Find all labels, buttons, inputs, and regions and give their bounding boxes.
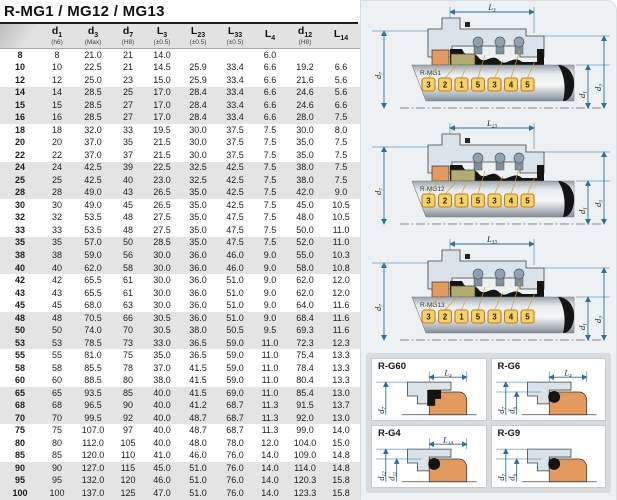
table-cell: 18 — [0, 126, 40, 135]
table-cell: 70 — [40, 414, 74, 423]
table-row: 707099.59240.048.768.711.392.013.0 — [0, 412, 360, 425]
table-cell: 50 — [0, 326, 40, 335]
table-row: 8585120.011041.046.076.014.0109.014.8 — [0, 450, 360, 463]
table-cell: 65 — [40, 389, 74, 398]
table-cell: 53 — [40, 339, 74, 348]
table-cell: 65.5 — [74, 276, 112, 285]
table-cell: 14.0 — [254, 451, 286, 460]
table-cell: 99.5 — [74, 414, 112, 423]
table-cell: 51.0 — [216, 314, 254, 323]
table-cell: 15 — [0, 101, 40, 110]
spring — [514, 269, 524, 279]
table-cell: 99.0 — [286, 426, 324, 435]
table-cell: 32.5 — [180, 163, 216, 172]
table-cell: 59.0 — [216, 351, 254, 360]
d7-dimension-label: d7 — [373, 72, 385, 79]
table-cell: 68 — [0, 401, 40, 410]
table-cell: 47.0 — [144, 489, 180, 498]
table-cell: 12 — [40, 76, 74, 85]
table-cell: 15.0 — [144, 76, 180, 85]
table-header-corner — [0, 24, 40, 48]
seat-elastomer — [432, 282, 449, 297]
table-cell: 59.0 — [216, 339, 254, 348]
table-row: 535378.57333.036.559.011.072.312.3 — [0, 337, 360, 350]
table-cell: 22 — [40, 151, 74, 160]
table-cell: 61 — [112, 289, 144, 298]
table-cell: 33.4 — [216, 88, 254, 97]
table-cell: 27 — [112, 101, 144, 110]
table-cell: 7.5 — [324, 113, 358, 122]
table-cell: 15 — [40, 101, 74, 110]
table-cell: 14.0 — [254, 489, 286, 498]
table-cell: 41.5 — [180, 376, 216, 385]
table-row: 484870.56630.536.051.09.068.411.6 — [0, 312, 360, 325]
table-cell: 30.0 — [144, 251, 180, 260]
table-cell: 28.5 — [74, 101, 112, 110]
seal-diagram-r-mg1: L3 R-MG1 3215345 — [364, 3, 614, 117]
left-dimension-label: d7 — [377, 407, 388, 414]
table-cell: 7.5 — [254, 238, 286, 247]
callout-number: 4 — [508, 197, 513, 206]
table-cell: 112.0 — [74, 439, 112, 448]
callout-number: 3 — [492, 313, 497, 322]
table-cell: 58 — [0, 364, 40, 373]
table-cell: 45 — [0, 301, 40, 310]
callout-box: 3 — [488, 194, 501, 207]
table-cell: 9.5 — [254, 326, 286, 335]
table-cell: 12.3 — [324, 339, 358, 348]
table-cell: 17.0 — [144, 88, 180, 97]
table-cell: 46.0 — [144, 476, 180, 485]
table-cell: 30.0 — [180, 151, 216, 160]
table-cell: 28.0 — [286, 113, 324, 122]
table-cell: 41.5 — [180, 389, 216, 398]
table-cell: 72.3 — [286, 339, 324, 348]
table-cell: 10.8 — [324, 264, 358, 273]
table-cell: 11.3 — [254, 426, 286, 435]
table-cell: 38.0 — [286, 176, 324, 185]
table-cell: 21.5 — [144, 138, 180, 147]
table-cell: 90 — [40, 464, 74, 473]
dimension-table-section: R-MG1 / MG12 / MG13 d1(h6)d3(Max)d7(H8)L… — [0, 0, 360, 500]
table-cell: 40.0 — [144, 439, 180, 448]
table-cell: 95 — [0, 476, 40, 485]
table-cell: 36.0 — [180, 264, 216, 273]
column-header: L14 — [324, 29, 358, 42]
seat-ring — [451, 170, 475, 181]
table-cell: 68.0 — [74, 301, 112, 310]
callout-number: 2 — [442, 81, 447, 90]
d1-dimension-label: d1 — [577, 323, 589, 330]
table-cell: 14.8 — [324, 464, 358, 473]
table-cell: 14.0 — [144, 51, 180, 60]
table-cell: 92 — [112, 414, 144, 423]
table-cell: 115 — [112, 464, 144, 473]
table-cell: 30.0 — [286, 126, 324, 135]
table-cell: 42.5 — [216, 176, 254, 185]
table-cell: 40.0 — [144, 389, 180, 398]
column-header: L23(±0.5) — [180, 26, 216, 47]
table-row: 686896.59040.041.268.711.391.513.7 — [0, 399, 360, 412]
variant-card-r-g6: R-G6 L4 d7 d6 — [491, 358, 607, 421]
callout-number: 4 — [508, 313, 513, 322]
table-cell: 25 — [112, 88, 144, 97]
table-cell: 100 — [0, 489, 40, 498]
table-cell: 7.5 — [254, 213, 286, 222]
callout-number: 4 — [508, 81, 513, 90]
table-cell: 123.3 — [286, 489, 324, 498]
table-cell: 24.6 — [286, 88, 324, 97]
table-cell: 33.0 — [144, 339, 180, 348]
table-cell: 13.3 — [324, 376, 358, 385]
column-header: L4 — [254, 29, 286, 42]
d3-dimension-label: d3 — [593, 84, 605, 91]
table-cell: 28.5 — [144, 238, 180, 247]
callout-number: 5 — [475, 313, 480, 322]
table-row: 8080112.010540.048.078.012.0104.015.0 — [0, 437, 360, 450]
table-cell: 38.0 — [144, 376, 180, 385]
table-cell: 30.0 — [144, 264, 180, 273]
table-cell: 97 — [112, 426, 144, 435]
table-cell: 7.5 — [254, 163, 286, 172]
table-row: 141428.52517.028.433.46.624.65.6 — [0, 87, 360, 100]
callout-number: 3 — [492, 197, 497, 206]
table-cell: 30.0 — [180, 138, 216, 147]
table-cell: 33.4 — [216, 76, 254, 85]
callout-box: 5 — [521, 194, 534, 207]
table-cell: 7.5 — [254, 126, 286, 135]
callout-box: 2 — [438, 310, 451, 323]
table-cell: 120.0 — [74, 451, 112, 460]
table-cell: 28 — [0, 188, 40, 197]
table-row: 7575107.09740.048.768.711.399.014.0 — [0, 424, 360, 437]
table-cell: 85.4 — [286, 389, 324, 398]
table-cell: 49.0 — [74, 201, 112, 210]
callout-number: 3 — [492, 81, 497, 90]
dimension-table: 8821.02114.06.0101022.52114.525.933.46.6… — [0, 49, 360, 500]
table-cell: 25 — [40, 176, 74, 185]
callout-number: 5 — [525, 81, 530, 90]
table-cell: 6.6 — [324, 63, 358, 72]
table-cell: 85 — [112, 389, 144, 398]
table-cell: 7.5 — [254, 188, 286, 197]
left-dimension-label: d7 — [496, 407, 507, 414]
callout-box: 5 — [521, 78, 534, 91]
page-title: R-MG1 / MG12 / MG13 — [0, 0, 358, 24]
table-cell: 110 — [112, 451, 144, 460]
column-header: L3(±0.5) — [144, 26, 180, 47]
callout-box: 1 — [455, 78, 468, 91]
table-cell: 36.0 — [180, 314, 216, 323]
table-row: 9595132.012046.051.076.014.0120.315.8 — [0, 475, 360, 488]
table-cell: 85.5 — [74, 364, 112, 373]
left-dimension-label: d11 — [388, 471, 399, 480]
spring — [495, 153, 505, 163]
variant-cross-section: L4 d7 d6 — [492, 369, 606, 419]
table-cell: 22.5 — [144, 163, 180, 172]
table-cell: 28 — [40, 188, 74, 197]
table-cell: 43 — [0, 289, 40, 298]
table-cell: 33 — [112, 126, 144, 135]
table-cell: 51.0 — [180, 464, 216, 473]
table-cell: 36.5 — [180, 339, 216, 348]
table-cell: 12.0 — [254, 439, 286, 448]
table-cell: 26.5 — [144, 188, 180, 197]
table-cell: 35.0 — [180, 188, 216, 197]
table-cell: 43 — [40, 289, 74, 298]
table-cell: 30.0 — [144, 301, 180, 310]
table-cell: 62.0 — [74, 264, 112, 273]
table-cell: 7.5 — [324, 151, 358, 160]
table-cell: 36.0 — [180, 301, 216, 310]
table-cell: 32.0 — [74, 126, 112, 135]
table-cell: 60 — [0, 376, 40, 385]
callout-box: 3 — [422, 194, 435, 207]
table-cell: 48 — [112, 226, 144, 235]
spring — [473, 269, 483, 279]
table-cell: 58 — [40, 364, 74, 373]
table-cell: 30 — [0, 201, 40, 210]
table-cell: 45.0 — [286, 201, 324, 210]
table-cell: 76.0 — [216, 464, 254, 473]
table-cell: 78.5 — [74, 339, 112, 348]
table-cell: 68.7 — [216, 401, 254, 410]
table-cell: 14.0 — [324, 426, 358, 435]
top-dimension-label: L4 — [563, 369, 572, 379]
table-cell: 127.0 — [74, 464, 112, 473]
table-cell: 35.0 — [286, 151, 324, 160]
table-row: 9090127.011545.051.076.014.0114.014.8 — [0, 462, 360, 475]
table-cell: 47.5 — [216, 213, 254, 222]
table-cell: 62.0 — [286, 276, 324, 285]
table-header-row: d1(h6)d3(Max)d7(H8)L3(±0.5)L23(±0.5)L33(… — [0, 24, 360, 49]
table-cell: 114.0 — [286, 464, 324, 473]
table-cell: 38.0 — [286, 163, 324, 172]
table-cell: 37.5 — [216, 138, 254, 147]
callout-row: 3215345 — [422, 194, 534, 207]
table-cell: 78.0 — [216, 439, 254, 448]
table-cell: 30.5 — [144, 326, 180, 335]
table-cell: 5.6 — [324, 76, 358, 85]
table-cell: 10 — [40, 63, 74, 72]
top-dimension: L4 — [549, 369, 587, 382]
callout-number: 5 — [475, 81, 480, 90]
table-cell: 38 — [40, 251, 74, 260]
table-cell: 55.0 — [286, 251, 324, 260]
table-cell: 53.5 — [74, 213, 112, 222]
table-cell: 28.5 — [74, 88, 112, 97]
table-cell: 28.4 — [180, 113, 216, 122]
table-cell: 35 — [112, 138, 144, 147]
table-cell: 60 — [40, 376, 74, 385]
table-cell: 30.0 — [144, 276, 180, 285]
table-row: 202037.03521.530.037.57.535.07.5 — [0, 137, 360, 150]
table-cell: 137.0 — [74, 489, 112, 498]
diagram-panel: L3 R-MG1 3215345 — [360, 0, 617, 500]
table-cell: 11.0 — [254, 376, 286, 385]
variant-cross-section: L4 d7 — [372, 369, 486, 419]
callout-number: 3 — [426, 197, 431, 206]
table-row: 555581.07535.036.559.011.075.413.3 — [0, 349, 360, 362]
table-cell: 95 — [40, 476, 74, 485]
table-cell: 42.5 — [216, 201, 254, 210]
table-cell: 40.0 — [144, 414, 180, 423]
table-cell: 11.6 — [324, 301, 358, 310]
table-cell: 13.3 — [324, 351, 358, 360]
table-cell: 48.0 — [286, 213, 324, 222]
table-cell: 58.0 — [286, 264, 324, 273]
table-cell: 7.5 — [254, 151, 286, 160]
table-cell: 49.0 — [74, 188, 112, 197]
table-cell: 37.0 — [74, 138, 112, 147]
table-cell: 16 — [40, 113, 74, 122]
callout-box: 5 — [471, 194, 484, 207]
o-ring — [548, 458, 560, 470]
table-cell: 10.5 — [324, 213, 358, 222]
set-screw — [465, 254, 470, 259]
table-cell: 27.5 — [144, 226, 180, 235]
table-row: 454568.06330.036.051.09.064.011.6 — [0, 299, 360, 312]
callout-box: 1 — [455, 310, 468, 323]
table-cell: 85 — [40, 451, 74, 460]
table-cell: 64.0 — [286, 301, 324, 310]
table-cell: 17.0 — [144, 101, 180, 110]
table-cell: 42.5 — [74, 176, 112, 185]
table-cell: 20 — [40, 138, 74, 147]
table-cell: 33.4 — [216, 63, 254, 72]
callout-number: 5 — [525, 197, 530, 206]
table-row: 434365.56130.036.051.09.062.012.0 — [0, 287, 360, 300]
table-cell: 14.0 — [254, 476, 286, 485]
table-cell: 7.5 — [324, 138, 358, 147]
callout-number: 5 — [525, 313, 530, 322]
table-cell: 15.8 — [324, 489, 358, 498]
table-cell: 9.0 — [254, 264, 286, 273]
table-cell: 41.5 — [180, 364, 216, 373]
table-cell: 68.7 — [216, 414, 254, 423]
seal-cross-section-drawing: L33 R-MG13 3215345 — [364, 235, 614, 349]
table-cell: 6.6 — [254, 88, 286, 97]
table-cell: 76.0 — [216, 451, 254, 460]
column-header: L33(±0.5) — [216, 26, 254, 47]
table-cell: 42 — [40, 276, 74, 285]
table-row: 424265.56130.036.051.09.062.012.0 — [0, 274, 360, 287]
table-cell: 10.3 — [324, 251, 358, 260]
table-cell: 19.2 — [286, 63, 324, 72]
table-cell: 9.0 — [254, 276, 286, 285]
table-cell: 56 — [112, 251, 144, 260]
d7-dimension-label: d7 — [373, 188, 385, 195]
table-cell: 11.0 — [254, 389, 286, 398]
table-cell: 37.0 — [74, 151, 112, 160]
table-cell: 120 — [112, 476, 144, 485]
table-cell: 8 — [0, 51, 40, 60]
d1-dimension-label: d1 — [577, 91, 589, 98]
table-cell: 11.0 — [254, 339, 286, 348]
table-cell: 21 — [112, 51, 144, 60]
seal-cross-sections: L3 R-MG1 3215345 — [361, 3, 616, 349]
table-cell: 48 — [40, 314, 74, 323]
table-cell: 35 — [40, 238, 74, 247]
table-cell: 24.6 — [286, 101, 324, 110]
table-cell: 35.0 — [180, 238, 216, 247]
table-cell: 35.0 — [286, 138, 324, 147]
table-cell: 30.0 — [144, 289, 180, 298]
table-cell: 16 — [0, 113, 40, 122]
table-cell: 8 — [40, 51, 74, 60]
table-cell: 37.0 — [144, 364, 180, 373]
table-cell: 14.8 — [324, 451, 358, 460]
seal-cross-section-drawing: L23 R-MG12 3215345 — [364, 119, 614, 233]
table-cell: 81.0 — [74, 351, 112, 360]
table-cell: 35.0 — [144, 351, 180, 360]
table-cell: 43 — [112, 188, 144, 197]
table-row: 383859.05630.036.046.09.055.010.3 — [0, 249, 360, 262]
table-cell: 32 — [0, 213, 40, 222]
datasheet-page: R-MG1 / MG12 / MG13 d1(h6)d3(Max)d7(H8)L… — [0, 0, 617, 500]
seat-elastomer — [432, 166, 449, 181]
variant-card-r-g9: R-G9 d7 d6 — [491, 425, 607, 488]
table-cell: 46.0 — [216, 251, 254, 260]
table-cell: 15.0 — [324, 439, 358, 448]
table-row: 323253.54827.535.047.57.548.010.5 — [0, 212, 360, 225]
table-cell: 80 — [0, 439, 40, 448]
table-cell: 5.6 — [324, 88, 358, 97]
table-cell: 42.5 — [216, 163, 254, 172]
seal-diagram-r-mg13: L33 R-MG13 3215345 — [364, 235, 614, 349]
table-cell: 69.0 — [216, 389, 254, 398]
table-cell: 33 — [0, 226, 40, 235]
table-cell: 20 — [0, 138, 40, 147]
table-cell: 38.0 — [180, 326, 216, 335]
d3-dimension-label: d3 — [593, 200, 605, 207]
seat-elastomer — [432, 50, 449, 65]
table-cell: 51.0 — [216, 301, 254, 310]
table-cell: 59.0 — [216, 364, 254, 373]
table-row: 333353.54827.535.047.57.550.011.0 — [0, 224, 360, 237]
table-cell: 25 — [0, 176, 40, 185]
table-cell: 13.0 — [324, 414, 358, 423]
table-row: 8821.02114.06.0 — [0, 49, 360, 62]
table-cell: 62.0 — [286, 289, 324, 298]
table-cell: 30.0 — [180, 126, 216, 135]
table-row: 282849.04326.535.042.57.542.09.0 — [0, 187, 360, 200]
table-cell: 38 — [0, 251, 40, 260]
table-cell: 7.5 — [324, 163, 358, 172]
table-cell: 47.5 — [216, 226, 254, 235]
table-row: 121225.02315.025.933.46.621.65.6 — [0, 74, 360, 87]
column-header: d1(h6) — [40, 26, 74, 47]
top-dimension: L14 — [429, 436, 467, 449]
table-cell: 24 — [0, 163, 40, 172]
callout-box: 2 — [438, 78, 451, 91]
table-cell: 32.5 — [180, 176, 216, 185]
table-cell: 12 — [0, 76, 40, 85]
table-cell: 22.5 — [74, 63, 112, 72]
callout-number: 5 — [475, 197, 480, 206]
table-cell: 76.0 — [216, 489, 254, 498]
callout-number: 2 — [442, 197, 447, 206]
d7-dimension-label: d7 — [373, 304, 385, 311]
table-cell: 132.0 — [74, 476, 112, 485]
table-cell: 107.0 — [74, 426, 112, 435]
table-cell: 6.0 — [254, 51, 286, 60]
table-row: 101022.52114.525.933.46.619.26.6 — [0, 62, 360, 75]
table-cell: 23.0 — [144, 176, 180, 185]
table-row: 151528.52717.028.433.46.624.66.6 — [0, 99, 360, 112]
callout-box: 4 — [504, 194, 517, 207]
table-cell: 74.0 — [74, 326, 112, 335]
